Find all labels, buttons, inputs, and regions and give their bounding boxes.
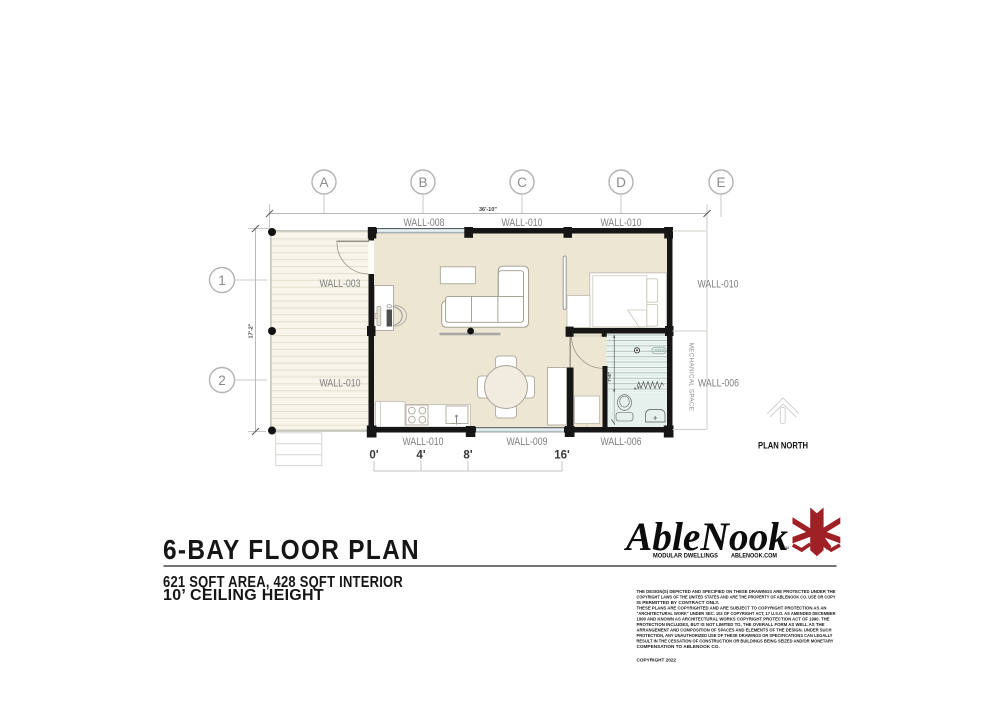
- svg-text:0': 0': [369, 450, 378, 462]
- svg-text:WALL-010: WALL-010: [403, 436, 444, 448]
- svg-text:A: A: [319, 175, 328, 190]
- svg-text:6-BAY FLOOR PLAN: 6-BAY FLOOR PLAN: [163, 534, 420, 565]
- svg-text:COMPENSATION TO ABLENOOK CO.: COMPENSATION TO ABLENOOK CO.: [637, 644, 720, 649]
- svg-text:ABLENOOK.COM: ABLENOOK.COM: [731, 553, 777, 560]
- svg-text:WALL-010: WALL-010: [502, 217, 543, 229]
- svg-text:17'-2": 17'-2": [249, 323, 255, 338]
- svg-text:MECHANICAL SPACE: MECHANICAL SPACE: [688, 343, 695, 411]
- svg-text:COPYRIGHT 2022: COPYRIGHT 2022: [637, 658, 677, 663]
- svg-text:WALL-008: WALL-008: [404, 217, 445, 229]
- svg-text:WALL-009: WALL-009: [507, 436, 548, 448]
- svg-text:PLAN NORTH: PLAN NORTH: [758, 441, 808, 451]
- svg-text:MODULAR DWELLINGS: MODULAR DWELLINGS: [653, 553, 719, 560]
- svg-text:PROTECTION INCLUDES, BUT IS NO: PROTECTION INCLUDES, BUT IS NOT LIMITED …: [637, 622, 825, 627]
- svg-text:B: B: [418, 175, 427, 190]
- svg-text:THESE PLANS ARE COPYRIGHTED AN: THESE PLANS ARE COPYRIGHTED AND ARE SUBJ…: [637, 606, 828, 611]
- svg-text:WALL-006: WALL-006: [698, 378, 739, 390]
- svg-text:ARRANGEMENT AND COMPOSITION OF: ARRANGEMENT AND COMPOSITION OF SPACES AN…: [637, 628, 833, 633]
- svg-text:RESULT IN THE CESSATION OF CON: RESULT IN THE CESSATION OF CONSTRUCTION …: [637, 639, 835, 644]
- svg-text:IS PERMITTED BY CONTRACT ONLY.: IS PERMITTED BY CONTRACT ONLY.: [637, 600, 720, 605]
- svg-text:WALL-003: WALL-003: [320, 278, 361, 290]
- svg-text:WALL-010: WALL-010: [698, 279, 739, 291]
- svg-text:36'-10": 36'-10": [479, 207, 497, 213]
- svg-text:E: E: [716, 175, 725, 190]
- svg-text:THE DESIGN(S) DEPICTED AND SPE: THE DESIGN(S) DEPICTED AND SPECIFIED ON …: [637, 589, 836, 594]
- svg-text:"ARCHITECTURAL WORK" UNDER SEC: "ARCHITECTURAL WORK" UNDER SEC. 102 OF C…: [637, 611, 837, 616]
- svg-text:TM: TM: [783, 545, 789, 550]
- svg-text:COPYRIGHT LAWS OF THE UNITED S: COPYRIGHT LAWS OF THE UNITED STATES AND …: [637, 595, 837, 600]
- svg-text:WALL-010: WALL-010: [601, 217, 642, 229]
- svg-text:WALL-010: WALL-010: [320, 378, 361, 390]
- svg-text:8': 8': [463, 450, 472, 462]
- svg-text:1990 AND KNOWN AS ARCHITECTURA: 1990 AND KNOWN AS ARCHITECTURAL WORKS CO…: [637, 617, 830, 622]
- svg-text:7'-8": 7'-8": [607, 372, 612, 382]
- svg-text:D: D: [616, 175, 626, 190]
- svg-text:PROTECTION, ANY UNAUTHORIZED U: PROTECTION, ANY UNAUTHORIZED USE OF THES…: [637, 633, 834, 638]
- svg-text:16': 16': [554, 450, 570, 462]
- svg-text:2: 2: [218, 373, 226, 388]
- svg-text:1: 1: [218, 273, 226, 288]
- svg-text:WALL-006: WALL-006: [601, 436, 642, 448]
- svg-text:C: C: [517, 175, 527, 190]
- svg-text:4': 4': [416, 450, 425, 462]
- svg-text:10’ CEILING HEIGHT: 10’ CEILING HEIGHT: [163, 587, 324, 604]
